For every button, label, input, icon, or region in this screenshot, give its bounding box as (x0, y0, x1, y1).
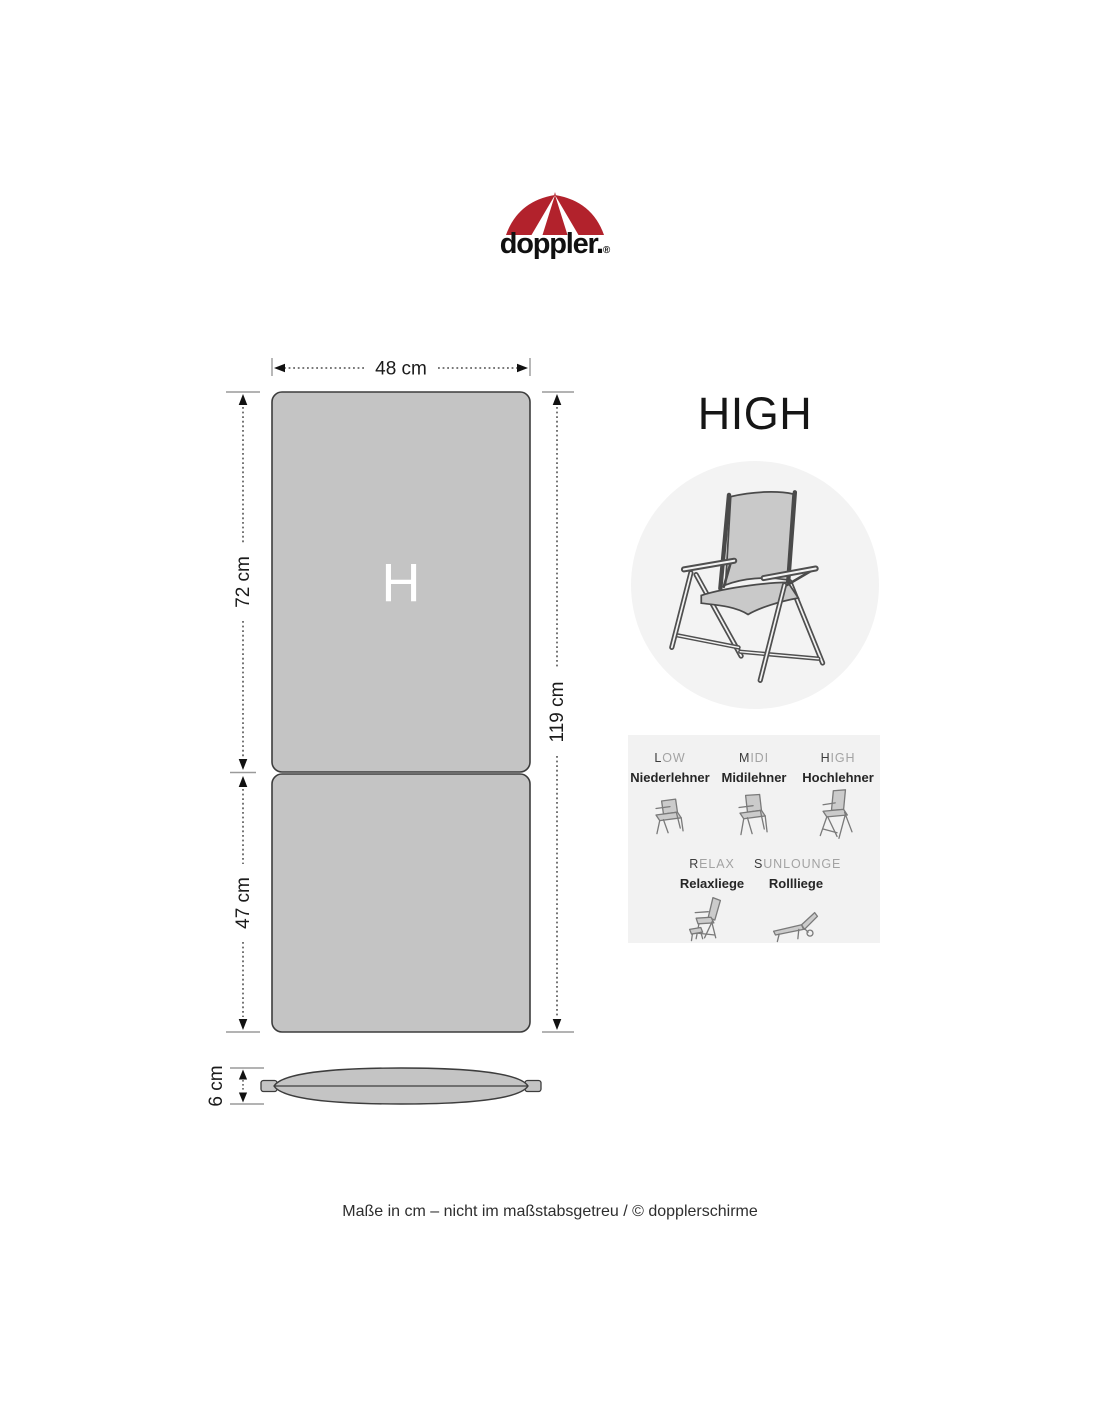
type-row-1: LOW Niederlehner MIDI Midilehner (628, 735, 880, 848)
type-code-initial: H (821, 751, 831, 765)
type-name: Rollliege (754, 876, 838, 891)
type-code: LOW (628, 751, 712, 765)
type-code: HIGH (796, 751, 880, 765)
sunlounge-icon (768, 893, 824, 949)
type-name: Hochlehner (796, 770, 880, 785)
type-code-initial: S (754, 857, 763, 871)
width-dimension-label: 48 cm (375, 359, 427, 380)
type-name: Midilehner (712, 770, 796, 785)
type-code-initial: M (739, 751, 750, 765)
chair-types-panel: LOW Niederlehner MIDI Midilehner (628, 735, 880, 943)
low-chair-icon (642, 787, 698, 843)
type-row-2: RELAX Relaxliege SUNLOUNGE Rol (628, 848, 880, 954)
type-code-rest: ELAX (699, 857, 735, 871)
type-item-sunlounge: SUNLOUNGE Rollliege (754, 857, 838, 954)
type-code: MIDI (712, 751, 796, 765)
relax-chair-icon (684, 893, 740, 949)
midi-chair-icon (726, 787, 782, 843)
type-code-rest: UNLOUNGE (763, 857, 841, 871)
type-item-midi: MIDI Midilehner (712, 751, 796, 848)
type-code-rest: IDI (750, 751, 769, 765)
total-dimension: 119 cm (542, 392, 574, 1032)
registered-mark: ® (603, 245, 610, 256)
type-name: Relaxliege (670, 876, 754, 891)
total-dimension-label: 119 cm (547, 682, 568, 743)
type-name: Niederlehner (628, 770, 712, 785)
type-item-relax: RELAX Relaxliege (670, 857, 754, 954)
type-code: SUNLOUNGE (754, 857, 838, 871)
high-chair-illustration (651, 472, 859, 698)
seat-dimension-label: 47 cm (233, 877, 254, 929)
cushion-letter: H (382, 553, 421, 613)
type-item-low: LOW Niederlehner (628, 751, 712, 848)
page-title: HIGH (630, 391, 880, 436)
brand-logo: doppler.® (495, 192, 615, 259)
brand-wordmark: doppler.® (495, 230, 615, 259)
back-dimension-label: 72 cm (233, 556, 254, 608)
footer-note: Maße in cm – nicht im maßstabsgetreu / ©… (0, 1203, 1100, 1221)
width-dimension: 48 cm (272, 358, 530, 380)
brand-wordmark-text: doppler. (500, 228, 603, 260)
cushion-side-view (261, 1068, 541, 1104)
type-code-rest: IGH (831, 751, 856, 765)
back-dimension: 72 cm (226, 392, 260, 773)
type-item-high: HIGH Hochlehner (796, 751, 880, 848)
product-dimension-sheet: doppler.® H 48 cm 72 cm (0, 0, 1100, 1422)
chair-circle (631, 461, 879, 709)
thickness-dimension: 6 cm (206, 1065, 264, 1106)
type-code-initial: R (689, 857, 699, 871)
thickness-dimension-label: 6 cm (206, 1065, 227, 1106)
high-chair-icon (810, 787, 866, 843)
type-code-rest: OW (662, 751, 685, 765)
cushion-diagram: H 48 cm 72 cm 47 cm (190, 340, 590, 1130)
cushion-seat-panel (272, 774, 530, 1032)
type-code: RELAX (670, 857, 754, 871)
seat-dimension: 47 cm (226, 776, 260, 1032)
